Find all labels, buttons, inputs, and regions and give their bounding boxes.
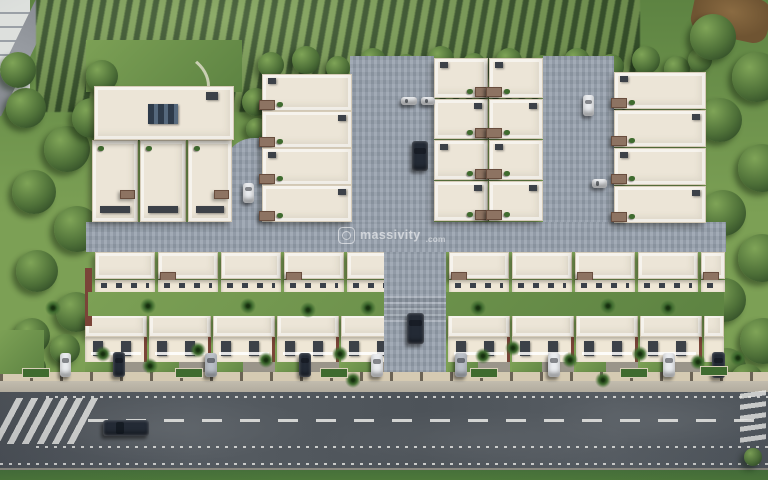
car-windshield xyxy=(409,320,422,326)
terrace-pergola xyxy=(486,128,502,138)
terrace-pergola xyxy=(214,190,229,199)
zebra-crossing-right xyxy=(740,387,766,443)
car-windshield xyxy=(62,358,69,363)
car-internal-street xyxy=(412,141,428,171)
terrace-pergola xyxy=(259,100,275,110)
car-windshield xyxy=(115,358,123,363)
parked-car xyxy=(60,353,71,377)
planter-box xyxy=(320,368,348,378)
window-strip xyxy=(196,206,224,213)
terrace-plant xyxy=(146,146,152,151)
terrace-pergola xyxy=(486,169,502,179)
rear-facade xyxy=(95,280,155,292)
terrace-pergola xyxy=(611,212,627,222)
rooftop-stair-box xyxy=(268,152,276,158)
street-vertical-left xyxy=(350,56,434,224)
watermark: massivity .com xyxy=(338,227,445,244)
parked-car xyxy=(401,97,417,105)
palm-tree xyxy=(595,372,611,388)
rear-facade xyxy=(512,280,572,292)
planter-box xyxy=(22,368,50,378)
rooftop-stair-box xyxy=(495,62,503,68)
window-strip xyxy=(707,283,719,288)
window-strip xyxy=(290,283,338,288)
terrace-plant xyxy=(277,213,283,218)
rooftop-stair-box xyxy=(206,92,218,100)
car-windshield xyxy=(550,358,558,363)
car-windshield xyxy=(116,422,124,434)
car-windshield xyxy=(585,100,592,104)
parked-car xyxy=(371,354,383,377)
palm-tree xyxy=(240,298,256,314)
front-rowhouse-roof xyxy=(704,314,724,337)
tree xyxy=(12,170,56,214)
watermark-tld: .com xyxy=(426,234,446,244)
palm-tree xyxy=(600,298,616,314)
car-windshield xyxy=(373,359,381,364)
palm-tree xyxy=(562,352,578,368)
terrace-plant xyxy=(467,171,473,176)
parked-car xyxy=(455,353,467,377)
parked-car xyxy=(548,353,560,377)
car-entrance-drive xyxy=(407,313,424,344)
balcony-rail xyxy=(518,352,568,355)
palm-tree xyxy=(470,300,486,316)
parked-car xyxy=(299,353,311,377)
tree xyxy=(690,14,736,60)
front-rowhouse-roof xyxy=(576,314,638,337)
front-rowhouse-roof xyxy=(149,314,211,337)
window-strip xyxy=(100,206,130,213)
terrace-plant xyxy=(467,89,473,94)
tree xyxy=(738,234,768,282)
tree xyxy=(0,52,36,88)
palm-tree xyxy=(730,350,746,366)
balcony-rail xyxy=(582,352,632,355)
terrace-plant xyxy=(504,130,510,135)
planter-box xyxy=(470,368,498,378)
road-bottom-dotted-line xyxy=(0,463,768,465)
terrace-plant xyxy=(629,214,635,219)
rooftop-skylight xyxy=(148,104,178,124)
terrace-plant xyxy=(277,139,283,144)
tree xyxy=(738,144,768,192)
car-windshield xyxy=(457,358,465,363)
window-strip xyxy=(455,283,503,288)
car-windshield xyxy=(301,358,309,363)
rear-facade xyxy=(158,280,218,292)
rooftop-stair-box xyxy=(692,190,700,196)
rooftop-stair-box xyxy=(268,78,276,84)
planter-box xyxy=(620,368,648,378)
palm-tree xyxy=(632,346,648,362)
verge-grass-strip xyxy=(0,470,768,480)
front-rowhouse-roof xyxy=(85,314,147,337)
parked-car xyxy=(243,183,254,203)
watermark-logo-icon xyxy=(338,227,355,244)
tree xyxy=(6,88,46,128)
front-rowhouse-roof xyxy=(448,314,510,337)
terrace-pergola xyxy=(259,211,275,221)
rear-rowhouse-roof xyxy=(95,252,155,279)
palm-tree xyxy=(142,358,158,374)
parked-car xyxy=(421,97,435,105)
lane-divider-dashes xyxy=(88,419,768,422)
parked-car xyxy=(205,353,217,377)
parked-car xyxy=(663,353,675,377)
car-windshield xyxy=(414,148,426,154)
palm-tree xyxy=(360,300,376,316)
terrace-plant xyxy=(194,146,200,151)
rooftop-stair-box xyxy=(474,103,482,109)
terrace-pergola xyxy=(611,174,627,184)
terrace-plant xyxy=(467,212,473,217)
parked-car xyxy=(583,95,594,116)
parked-car xyxy=(592,179,607,188)
rooftop-stair-box xyxy=(620,76,628,82)
roadside-planter-bush xyxy=(744,448,762,466)
terrace-plant xyxy=(629,138,635,143)
street-vertical-right xyxy=(543,56,614,224)
rear-rowhouse-roof xyxy=(512,252,572,279)
terrace-plant xyxy=(277,102,283,107)
palm-tree xyxy=(258,352,274,368)
palm-tree xyxy=(45,300,61,316)
rooftop-stair-box xyxy=(338,189,346,195)
palm-tree xyxy=(475,348,491,364)
watermark-text: massivity xyxy=(360,228,421,243)
rooftop-stair-box xyxy=(692,114,700,120)
window-strip xyxy=(581,283,629,288)
terrace-pergola xyxy=(120,190,135,199)
rear-rowhouse-roof xyxy=(638,252,698,279)
palm-tree xyxy=(300,302,316,318)
front-rowhouse-roof xyxy=(512,314,574,337)
rooftop-stair-box xyxy=(495,144,503,150)
terrace-pergola xyxy=(486,87,502,97)
rooftop-stair-box xyxy=(529,103,537,109)
tree xyxy=(292,46,320,74)
parked-car xyxy=(113,352,125,377)
rooftop-stair-box xyxy=(440,144,448,150)
road-edge-line xyxy=(46,396,768,398)
window-strip xyxy=(148,206,178,213)
terrace-plant xyxy=(629,100,635,105)
front-rowhouse-roof xyxy=(213,314,275,337)
rear-rowhouse-roof xyxy=(221,252,281,279)
rooftop-stair-box xyxy=(338,115,346,121)
car-windshield xyxy=(207,358,215,363)
front-rowhouse-roof xyxy=(640,314,702,337)
tree xyxy=(16,250,58,292)
rear-facade xyxy=(449,280,509,292)
tree xyxy=(732,52,768,102)
rooftop-stair-box xyxy=(529,185,537,191)
rooftop-stair-box xyxy=(620,152,628,158)
window-strip xyxy=(644,283,692,288)
terrace-plant xyxy=(98,146,104,151)
car-windshield xyxy=(714,358,723,363)
rear-facade xyxy=(284,280,344,292)
terrace-pergola xyxy=(259,174,275,184)
car-windshield xyxy=(405,99,408,103)
rooftop-stair-box xyxy=(440,62,448,68)
aerial-render: massivity .com xyxy=(0,0,768,480)
terrace-pergola xyxy=(611,98,627,108)
palm-tree xyxy=(505,340,521,356)
suv-main-road xyxy=(103,420,149,436)
planter-box xyxy=(175,368,203,378)
planter-box xyxy=(700,366,728,376)
window-strip xyxy=(227,283,275,288)
rear-facade xyxy=(575,280,635,292)
palm-tree xyxy=(140,298,156,314)
lane-dotted-line xyxy=(36,446,768,448)
rear-facade xyxy=(701,280,725,292)
car-windshield xyxy=(245,187,252,191)
terrace-pergola xyxy=(611,136,627,146)
window-strip xyxy=(101,283,149,288)
rear-facade xyxy=(638,280,698,292)
rear-facade xyxy=(221,280,281,292)
terrace-plant xyxy=(504,212,510,217)
terrace-pergola xyxy=(486,210,502,220)
terrace-plant xyxy=(277,176,283,181)
car-windshield xyxy=(425,99,428,103)
window-strip xyxy=(518,283,566,288)
terrace-plant xyxy=(504,171,510,176)
terrace-plant xyxy=(467,130,473,135)
terrace-plant xyxy=(504,89,510,94)
window-strip xyxy=(164,283,212,288)
palm-tree xyxy=(190,342,206,358)
palm-tree xyxy=(660,300,676,316)
car-windshield xyxy=(596,181,599,186)
rooftop-stair-box xyxy=(474,185,482,191)
tree xyxy=(632,46,660,74)
car-windshield xyxy=(665,358,673,363)
terrace-plant xyxy=(629,176,635,181)
terrace-pergola xyxy=(259,137,275,147)
palm-tree xyxy=(332,346,348,362)
palm-tree xyxy=(95,346,111,362)
